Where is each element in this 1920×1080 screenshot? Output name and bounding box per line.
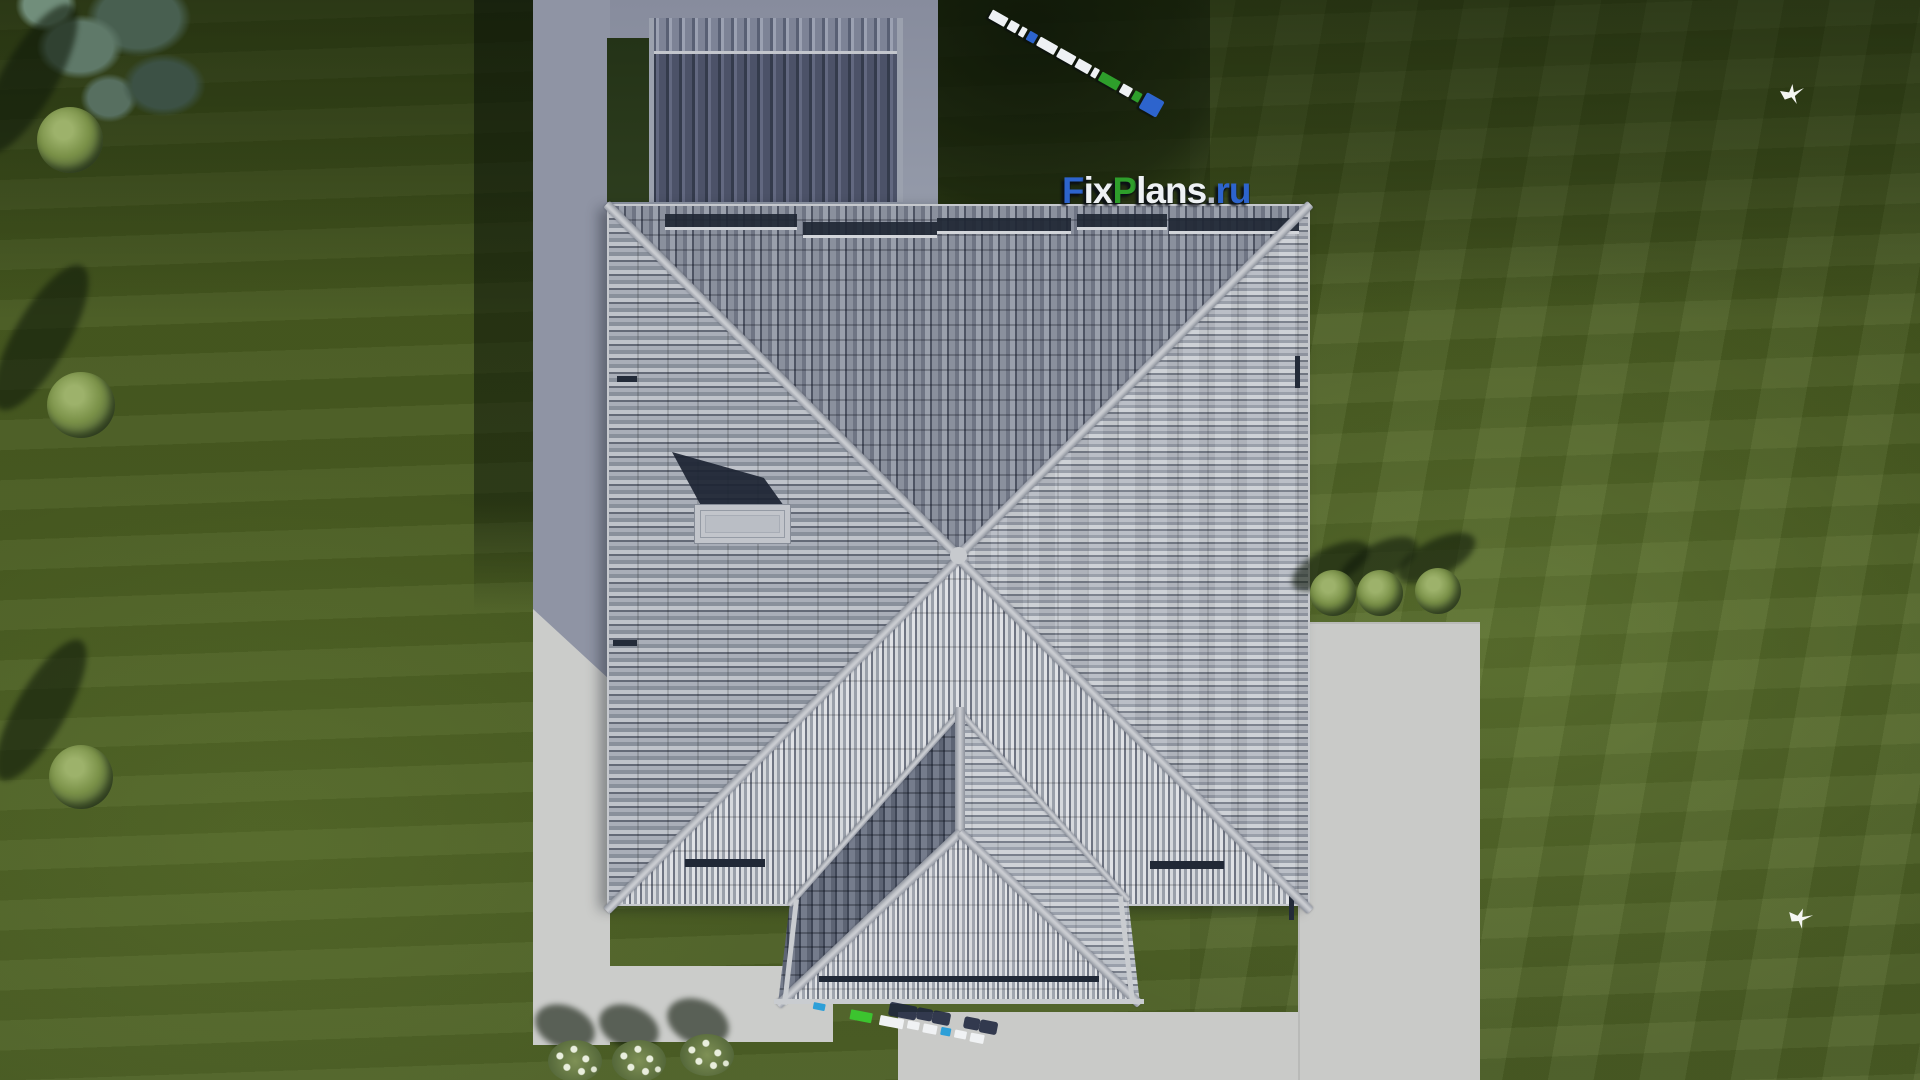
aerial-scene: FixPlans.ru xyxy=(0,0,1920,1080)
snow-guard xyxy=(937,218,1071,231)
garden-bed-strip xyxy=(607,38,653,202)
block-white xyxy=(922,1023,937,1035)
chimney-cap-rim xyxy=(700,510,785,538)
bush xyxy=(1310,570,1356,616)
bush xyxy=(47,372,115,438)
porch-ridge xyxy=(955,707,965,837)
bush xyxy=(1415,568,1461,614)
rear-wing-roof-highlight xyxy=(653,18,900,52)
rear-wing-ridge xyxy=(653,51,900,54)
block-white xyxy=(907,1020,920,1030)
snow-guard xyxy=(1150,861,1224,869)
bush xyxy=(1357,570,1403,616)
watermark-letters-lans: lans xyxy=(1136,170,1206,211)
block-blue xyxy=(940,1027,951,1037)
watermark-letters-ix: ix xyxy=(1084,170,1113,211)
stick-segment-white xyxy=(1119,83,1133,97)
rear-wing-roof xyxy=(653,18,900,202)
watermark-letter-p: P xyxy=(1112,170,1136,211)
chimney xyxy=(694,504,791,544)
snow-guard xyxy=(665,214,797,227)
porch-eave-bottom xyxy=(774,999,1144,1004)
snow-guard xyxy=(1077,214,1167,227)
block-blue xyxy=(813,1002,826,1011)
flower-bush xyxy=(612,1040,666,1080)
stick-segment-white xyxy=(1056,48,1077,66)
stick-segment-white xyxy=(1074,58,1092,74)
flower-bush xyxy=(680,1034,734,1076)
rear-wing-eave-right xyxy=(897,18,903,202)
bush xyxy=(37,107,103,173)
flower-bush xyxy=(548,1040,602,1080)
driveway xyxy=(1298,622,1480,1080)
snow-guard-rail xyxy=(937,231,1071,234)
snow-guard-rail xyxy=(665,227,797,230)
snow-guard xyxy=(819,976,1099,982)
house-cast-shadow xyxy=(474,0,536,612)
watermark-letters-ru: ru xyxy=(1215,170,1250,211)
block-white xyxy=(969,1033,984,1045)
snow-guard-rail xyxy=(1077,227,1167,230)
roof-apex xyxy=(950,547,967,564)
eave-bracket xyxy=(613,640,637,646)
main-roof xyxy=(607,204,1310,1016)
chimney-cap-top xyxy=(705,515,780,533)
snow-guard xyxy=(803,222,937,235)
snow-guard-rail xyxy=(803,235,937,238)
rear-wing-eave-left xyxy=(649,18,654,202)
watermark-brand: FixPlans.ru xyxy=(1062,170,1250,212)
stick-segment-white xyxy=(988,9,1009,27)
block-white xyxy=(954,1029,967,1039)
stick-segment-white xyxy=(1006,20,1020,34)
eave-bracket xyxy=(617,376,637,382)
snow-guard xyxy=(685,859,765,867)
bush xyxy=(49,745,113,809)
watermark-letter-f: F xyxy=(1062,170,1084,211)
eave-bracket xyxy=(1295,356,1300,388)
